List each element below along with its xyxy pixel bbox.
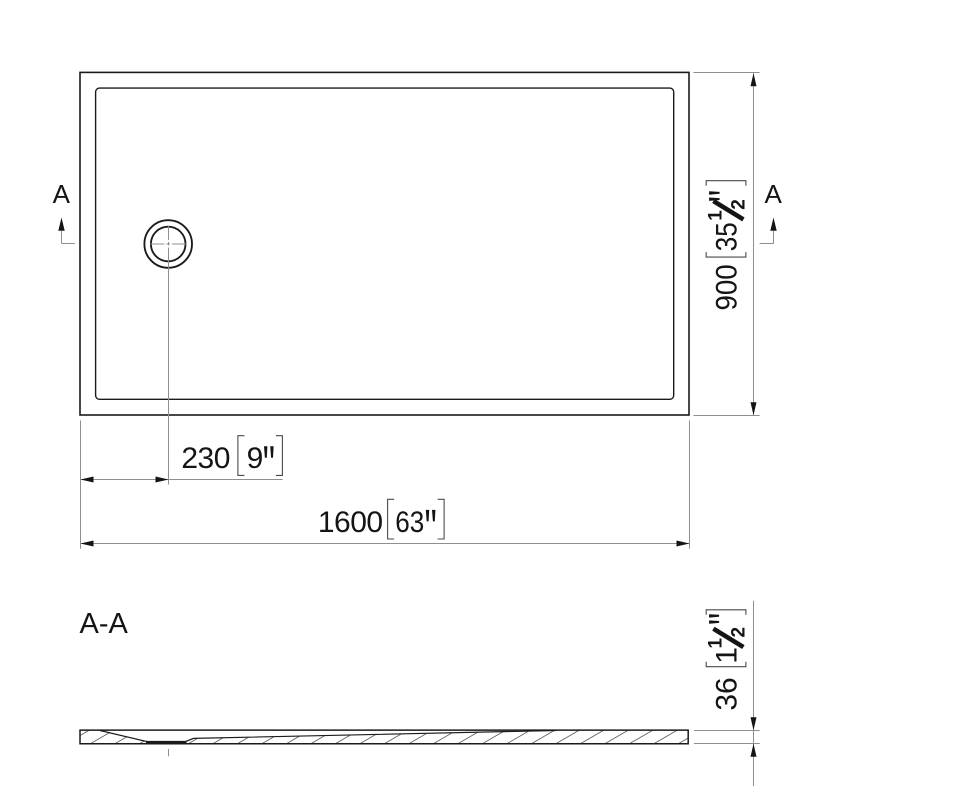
svg-text:A-A: A-A xyxy=(80,608,129,640)
svg-text:900: 900 xyxy=(711,264,744,310)
svg-text:A: A xyxy=(53,179,71,209)
svg-text:230: 230 xyxy=(181,442,230,475)
svg-text:1: 1 xyxy=(706,637,727,648)
svg-text:35: 35 xyxy=(711,222,744,251)
svg-text:A: A xyxy=(765,179,783,209)
svg-text:1: 1 xyxy=(711,647,744,664)
svg-text:9: 9 xyxy=(247,442,263,475)
svg-text:2: 2 xyxy=(728,199,749,210)
svg-text:1600: 1600 xyxy=(318,506,383,539)
svg-text:36: 36 xyxy=(711,677,744,710)
svg-text:2: 2 xyxy=(728,627,749,638)
svg-text:63: 63 xyxy=(395,506,424,539)
svg-text:1: 1 xyxy=(706,210,727,221)
